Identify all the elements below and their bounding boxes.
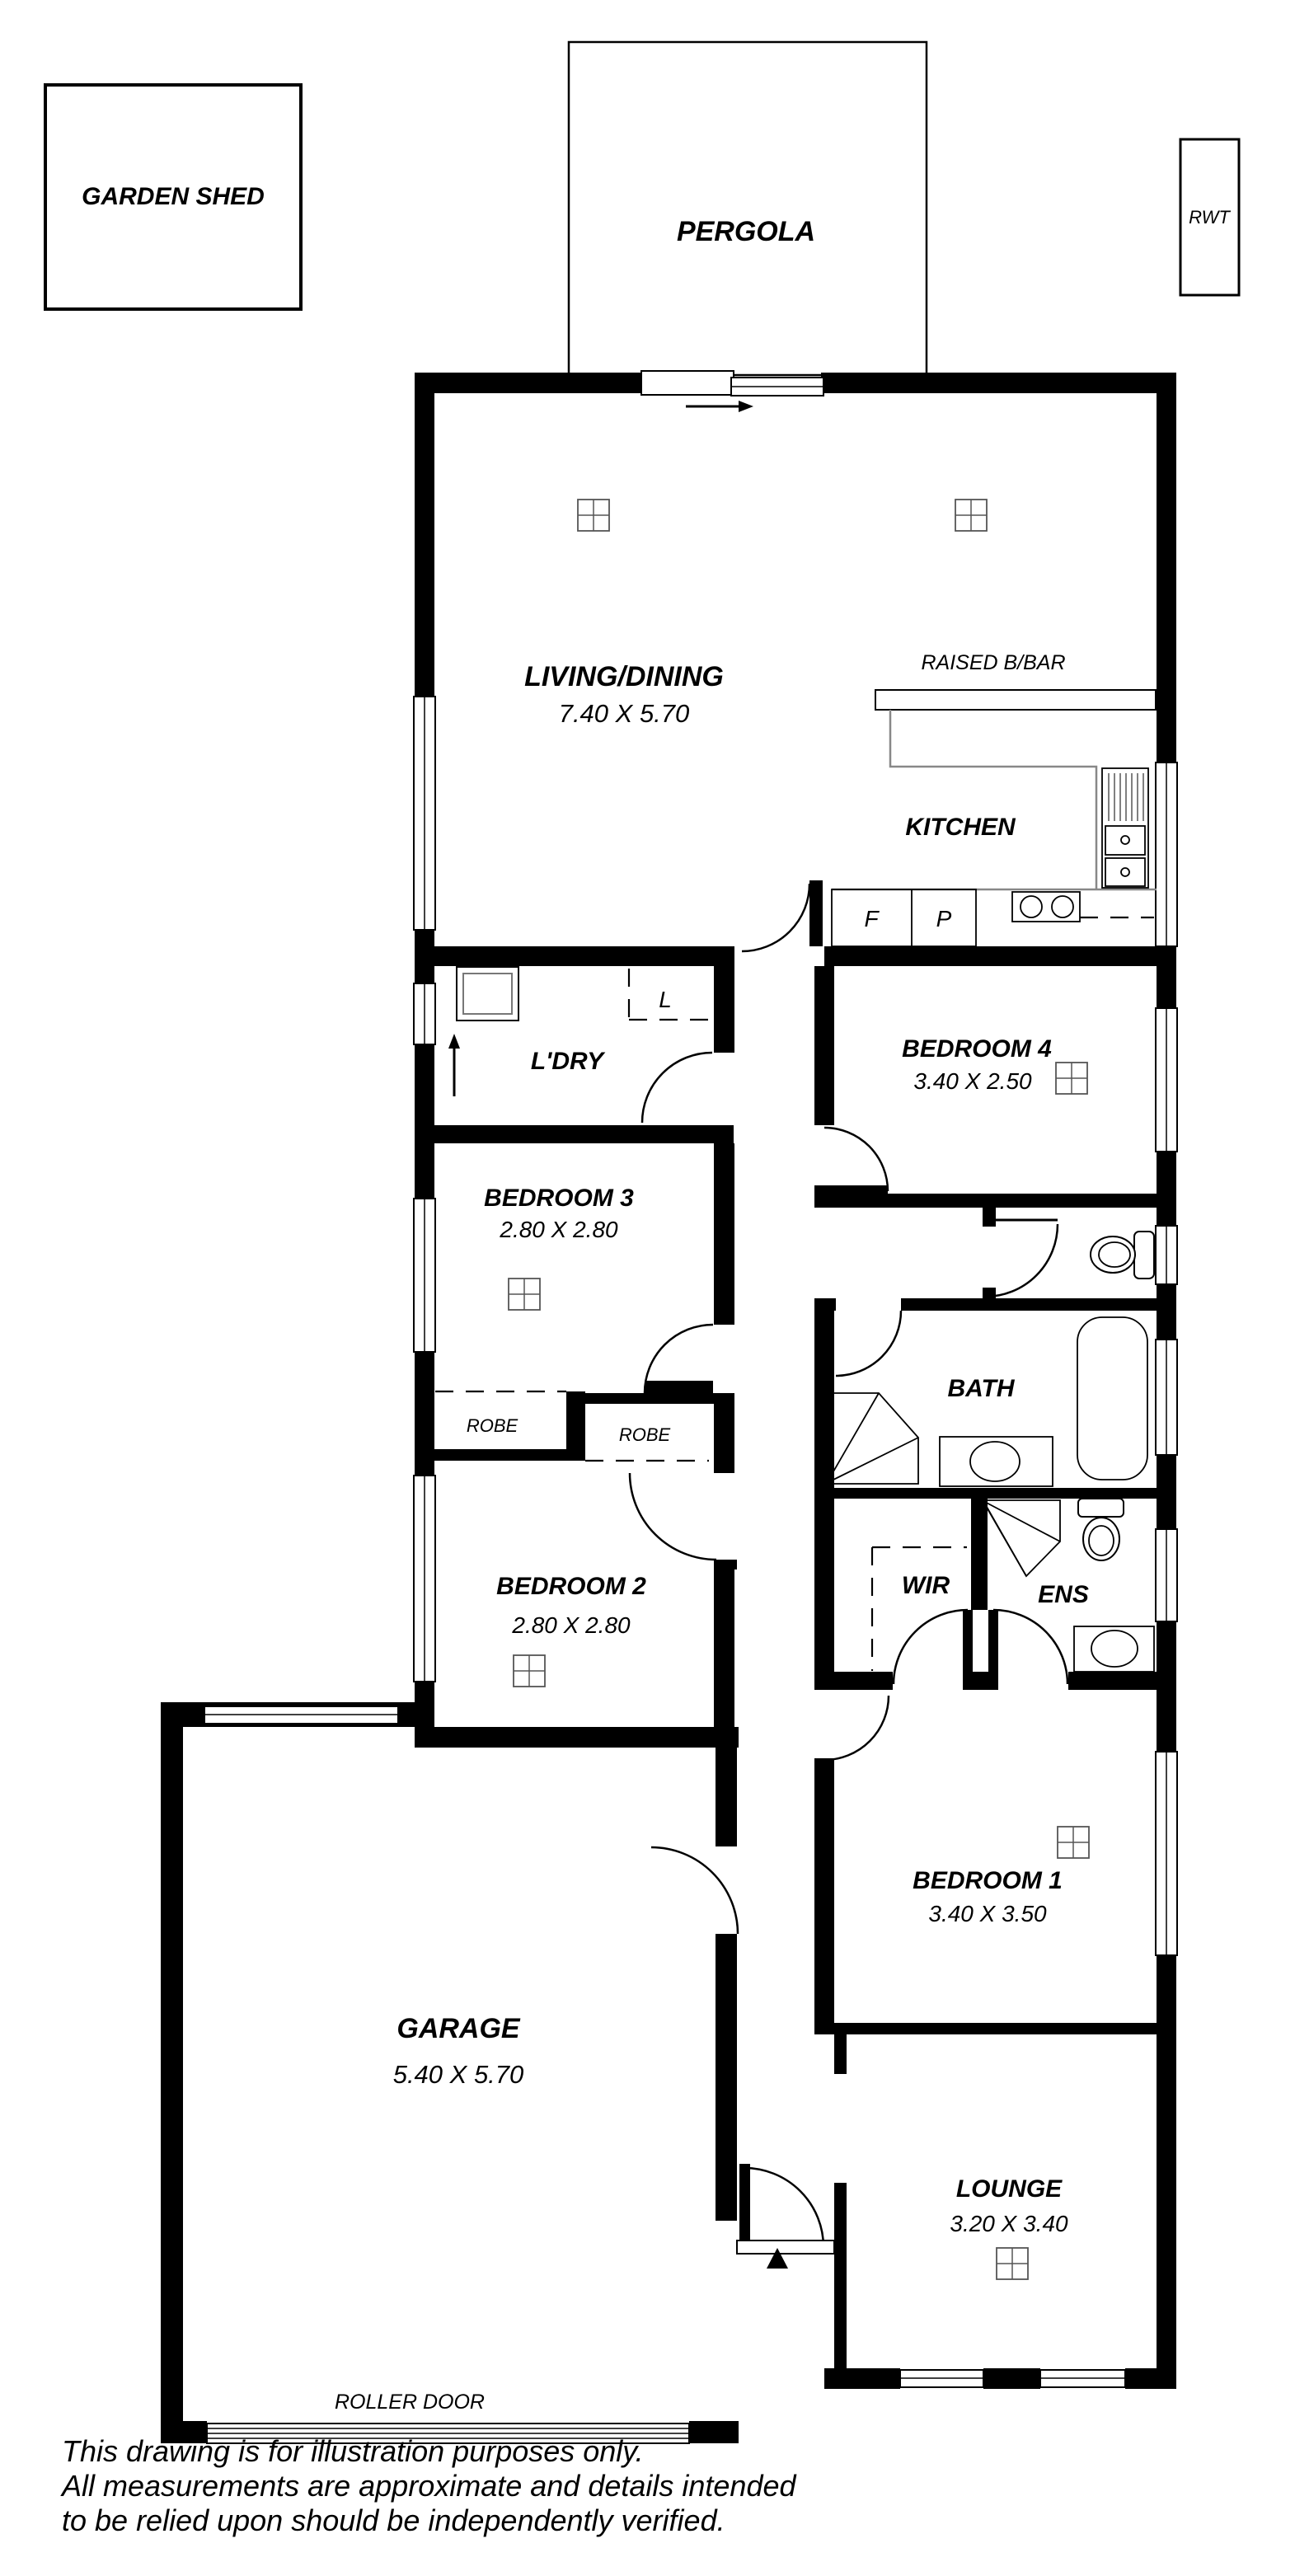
pantry-label: P [936, 906, 952, 931]
laundry-trough [457, 967, 518, 1021]
living-dining-label: LIVING/DINING [524, 661, 724, 692]
cooktop [1012, 892, 1080, 922]
bed1-dims: 3.40 X 3.50 [928, 1901, 1047, 1926]
garden-shed: GARDEN SHED [45, 85, 301, 309]
living-dining-dims: 7.40 X 5.70 [559, 699, 690, 728]
door-bath [836, 1311, 901, 1376]
door-wc [985, 1220, 1058, 1297]
pergola: PERGOLA [569, 42, 927, 375]
kitchen-sink [1102, 768, 1148, 888]
ceiling-symbol-bed2 [514, 1655, 545, 1687]
door-bed1 [824, 1696, 889, 1760]
window-wc-right [1156, 1226, 1177, 1284]
door-bed2 [630, 1473, 716, 1560]
ens-vanity [1074, 1626, 1154, 1672]
ceiling-symbol-bed3 [509, 1279, 540, 1310]
rwt-label: RWT [1189, 207, 1231, 228]
window-bed4-right [1156, 1008, 1177, 1152]
fridge-label: F [864, 906, 880, 931]
window-bed1-right [1156, 1752, 1177, 1955]
laundry-fixtures [448, 967, 714, 1096]
ceiling-symbol-bed4 [1056, 1063, 1087, 1094]
window-kitchen-right [1156, 762, 1177, 946]
raised-bbar-label: RAISED B/BAR [921, 651, 1065, 674]
disclaimer-line-1: This drawing is for illustration purpose… [62, 2434, 644, 2468]
door-garage-internal [651, 1847, 738, 1934]
wir-shelving [872, 1547, 967, 1671]
disclaimer: This drawing is for illustration purpose… [60, 2434, 796, 2537]
garage-label: GARAGE [396, 2013, 521, 2044]
robe-right-label: ROBE [619, 1424, 671, 1445]
garage-dims: 5.40 X 5.70 [393, 2060, 524, 2089]
laundry-label: L'DRY [531, 1048, 606, 1075]
window-ens-right [1156, 1529, 1177, 1621]
bed3-label: BEDROOM 3 [484, 1185, 634, 1212]
window-lounge-bottom-1 [900, 2370, 983, 2387]
bed2-dims: 2.80 X 2.80 [511, 1612, 631, 1638]
bed2-label: BEDROOM 2 [496, 1573, 646, 1600]
lounge-dims: 3.20 X 3.40 [950, 2211, 1068, 2236]
bathtub [1077, 1317, 1147, 1480]
ens-shower [983, 1500, 1060, 1576]
ens-toilet [1078, 1499, 1124, 1560]
bed4-dims: 3.40 X 2.50 [913, 1068, 1032, 1094]
door-front-entry [737, 2164, 834, 2269]
pergola-label: PERGOLA [677, 216, 815, 247]
ceiling-symbol-living-2 [955, 500, 987, 531]
kitchen-label: KITCHEN [905, 814, 1016, 841]
ceiling-symbol-lounge [997, 2248, 1028, 2279]
ceiling-symbol-bed1 [1058, 1827, 1089, 1858]
floor-plan-drawing: GARDEN SHED PERGOLA RWT [0, 0, 1295, 2576]
window-bath-right [1156, 1340, 1177, 1455]
garden-shed-label: GARDEN SHED [82, 183, 265, 210]
door-laundry [642, 1053, 712, 1123]
bath-label: BATH [947, 1375, 1015, 1402]
window-bed3-left [414, 1199, 435, 1352]
window-lounge-bottom-2 [1040, 2370, 1125, 2387]
laundry-arrow-icon [448, 1034, 460, 1096]
door-living-hall [742, 880, 823, 951]
window-living-left [414, 697, 435, 930]
bed3-dims: 2.80 X 2.80 [499, 1217, 618, 1242]
linen-label: L [659, 987, 672, 1012]
breakfast-bar [875, 690, 1156, 710]
wc-toilet [1091, 1232, 1154, 1279]
disclaimer-line-3: to be relied upon should be independentl… [62, 2503, 725, 2537]
disclaimer-line-2: All measurements are approximate and det… [60, 2469, 796, 2503]
robe-left-label: ROBE [467, 1415, 518, 1436]
window-laundry-left [414, 983, 435, 1044]
ceiling-symbol-living-1 [578, 500, 609, 531]
lounge-label: LOUNGE [956, 2175, 1063, 2203]
door-ens [988, 1610, 1067, 1684]
sliding-door-arrow-icon [686, 401, 753, 412]
door-wir [894, 1610, 973, 1684]
window-bed2-left [414, 1476, 435, 1682]
bed4-label: BEDROOM 4 [902, 1035, 1052, 1063]
door-bed4 [824, 1128, 888, 1191]
sliding-door [641, 371, 823, 412]
bath-shower [826, 1393, 918, 1484]
floor-plan-page: GARDEN SHED PERGOLA RWT [0, 0, 1295, 2576]
ens-label: ENS [1038, 1581, 1089, 1608]
roller-door-label: ROLLER DOOR [335, 2391, 485, 2414]
rainwater-tank: RWT [1180, 139, 1239, 295]
window-garage-top [204, 1706, 398, 1724]
bed1-label: BEDROOM 1 [913, 1867, 1063, 1894]
bath-vanity [940, 1437, 1053, 1486]
wir-label: WIR [902, 1572, 950, 1599]
fridge-pantry-cupboards [832, 889, 976, 946]
